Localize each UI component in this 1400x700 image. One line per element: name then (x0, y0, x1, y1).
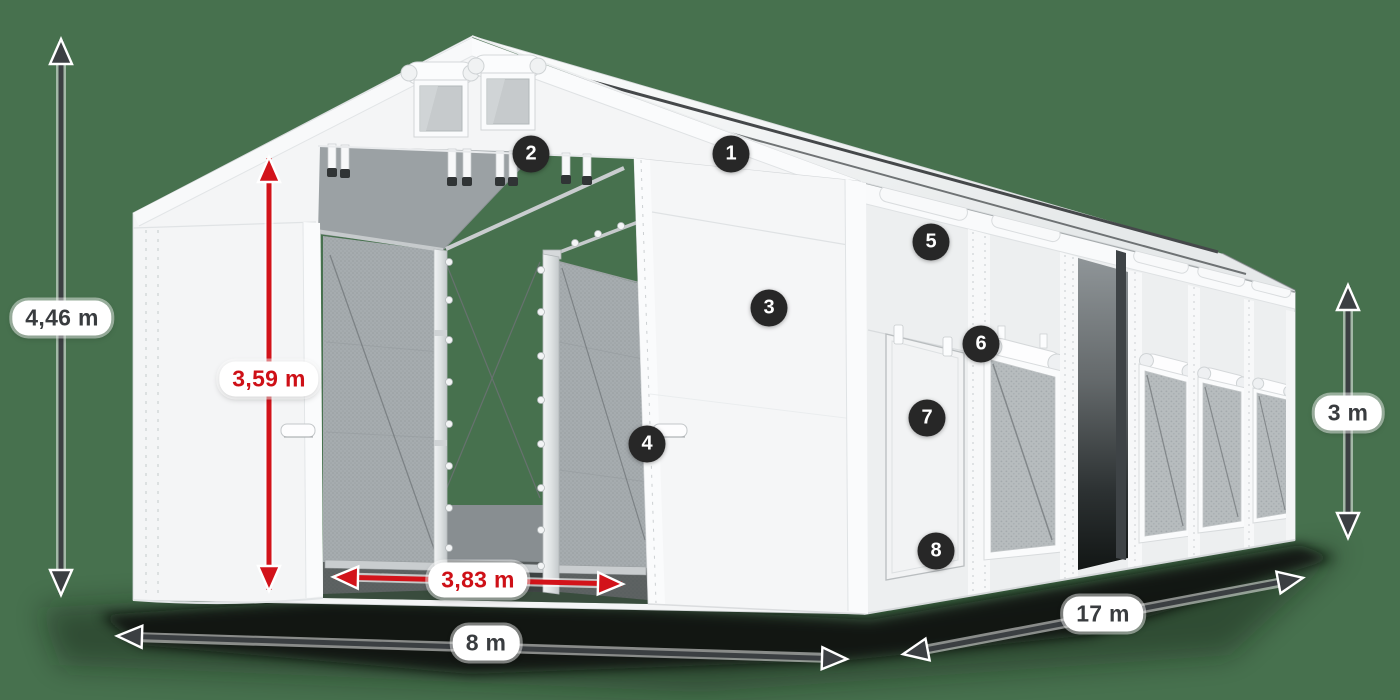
interior-left-panel (323, 236, 441, 594)
dimension-label-total-height: 4,46 m (12, 301, 111, 336)
side-window (984, 352, 1062, 560)
wall-post (1286, 310, 1295, 541)
dimension-label-entrance-height: 3,59 m (219, 362, 318, 397)
tent-illustration (0, 0, 1400, 700)
tent-dimension-diagram: 4,46 m 3,59 m 3,83 m 8 m 17 m 3 m 1 2 3 … (0, 0, 1400, 700)
feature-marker-4: 4 (629, 426, 666, 463)
door-handle (281, 424, 315, 437)
feature-marker-6: 6 (963, 326, 1000, 363)
feature-marker-1: 1 (713, 136, 750, 173)
feature-marker-2: 2 (513, 136, 550, 173)
feature-marker-8: 8 (918, 533, 955, 570)
corner-post (845, 179, 868, 614)
dimension-label-width: 8 m (453, 626, 520, 661)
side-window (1198, 377, 1246, 533)
feature-marker-7: 7 (909, 400, 946, 437)
wall-post (1060, 252, 1078, 580)
front-entrance-interior (316, 144, 648, 604)
front-right-panel (634, 158, 864, 614)
side-window (1139, 364, 1191, 543)
open-side-doorway (1078, 250, 1128, 570)
side-window (1253, 388, 1291, 523)
dimension-label-side-height: 3 m (1315, 396, 1382, 431)
dimension-label-entrance-width: 3,83 m (428, 563, 527, 598)
feature-marker-5: 5 (913, 224, 950, 261)
dimension-label-length: 17 m (1063, 597, 1143, 632)
feature-marker-3: 3 (751, 290, 788, 327)
